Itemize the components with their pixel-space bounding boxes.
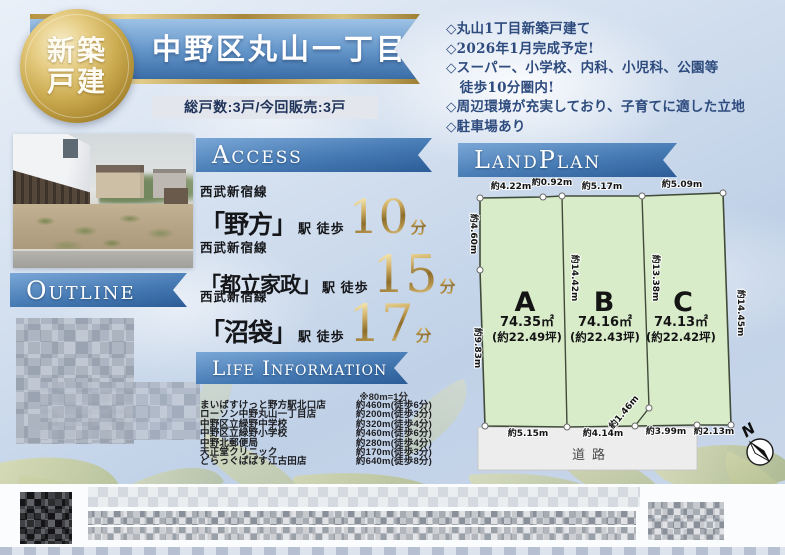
outline-details-blurred [40, 382, 200, 440]
footer-band [0, 484, 785, 555]
measurement-bottom-b: 約4.14m [583, 427, 624, 439]
photo-road-shape [13, 249, 193, 268]
footer-text-blurred [88, 511, 636, 525]
lot-b-label: B [594, 287, 615, 318]
outline-heading-ribbon: Outline [10, 273, 187, 307]
new-build-badge: 新築 戸建 [20, 9, 134, 123]
minutes-unit: 分 [416, 322, 432, 346]
lot-c-tsubo: (約22.42坪) [646, 330, 716, 344]
life-information-heading-label: Life Information [196, 356, 387, 380]
measurement-bottom-a: 約5.15m [508, 427, 549, 439]
flyer-canvas: 新築 戸建 中野区丸山一丁目 総戸数:3戸/今回販売:3戸 ◇丸山1丁目新築戸建… [0, 0, 785, 555]
lot-b-area: 74.16㎡ [578, 314, 632, 330]
highlight-line: ◇周辺環境が充実しており、子育てに適した立地 [446, 98, 784, 118]
measurement-top-c: 約5.09m [662, 178, 703, 190]
life-information-heading-ribbon: Life Information [196, 352, 408, 384]
lot-a-tsubo: (約22.49坪) [492, 330, 562, 344]
road-label: 道路 [572, 447, 612, 463]
highlight-line: 徒歩10分圏内! [446, 79, 784, 99]
footer-text-blurred [88, 527, 636, 540]
lot-c-area: 74.13㎡ [654, 314, 708, 330]
footer-text-blurred [88, 487, 640, 507]
land-plan-diagram: 道路 A 74.35㎡ (約22.49坪) B 74.16㎡ (約22.43坪)… [452, 178, 785, 493]
access-heading-ribbon: Access [196, 138, 432, 172]
measurement-inner-ab: 約14.42m [569, 255, 581, 302]
access-route: 西武新宿線 「野方」 駅 徒歩 10 分 [200, 181, 452, 241]
measurement-left-lower: 約9.83m [472, 328, 484, 369]
highlights-list: ◇丸山1丁目新築戸建て ◇2026年1月完成予定! ◇スーパー、小学校、内科、小… [446, 20, 784, 137]
land-plan-heading-ribbon: LandPlan [458, 143, 677, 177]
footer-bottom-strip [0, 547, 785, 555]
property-photo [13, 134, 193, 268]
facility-list: まいばすけっと野方駅北口店 約460m(徒歩6分) ローソン中野丸山一丁目店 約… [200, 401, 432, 467]
photo-background-house-shape [96, 165, 145, 199]
compass-north-label: N [738, 419, 759, 441]
facility-row: どらっぐぱぱす江古田店 約640m(徒歩8分) [200, 457, 432, 466]
measurement-inner-bc: 約13.38m [650, 255, 662, 302]
footer-block-blurred [648, 502, 724, 540]
station-name: 「野方」 [200, 205, 296, 241]
measurement-right-side: 約14.45m [735, 290, 747, 337]
highlight-line: ◇駐車場あり [446, 118, 784, 138]
measurement-bottom-c: 約3.99m [646, 425, 687, 437]
badge-text-line2: 戸建 [47, 66, 107, 97]
highlight-line: ◇丸山1丁目新築戸建て [446, 20, 784, 40]
lot-a-area: 74.35㎡ [500, 314, 554, 330]
walk-label: 駅 徒歩 [298, 218, 345, 237]
access-route: 西武新宿線 「沼袋」 駅 徒歩 17 分 [200, 286, 452, 349]
measurement-top-a: 約4.22m [491, 180, 532, 192]
measurement-top-ab: 約0.92m [532, 178, 573, 188]
access-heading-label: Access [196, 141, 303, 169]
badge-text-line1: 新築 [47, 35, 107, 66]
outline-heading-label: Outline [10, 276, 136, 305]
photo-vacant-lot-ground [13, 204, 193, 254]
compass: N [738, 419, 773, 465]
walk-minutes: 10 [349, 198, 409, 238]
land-plan-heading-label: LandPlan [458, 146, 601, 174]
facility-distance: 約640m(徒歩8分) [356, 457, 432, 466]
minutes-unit: 分 [410, 214, 426, 238]
company-logo-blurred [20, 492, 72, 544]
lot-b-tsubo: (約22.43坪) [570, 330, 640, 344]
lot-c-label: C [673, 287, 693, 318]
facility-name: どらっぐぱぱす江古田店 [200, 457, 307, 466]
station-name: 「沼袋」 [200, 313, 296, 349]
highlight-line: ◇2026年1月完成予定! [446, 40, 784, 60]
measurement-left-upper: 約4.60m [468, 214, 480, 255]
walk-minutes: 17 [349, 303, 414, 346]
walk-label: 駅 徒歩 [298, 326, 345, 345]
measurement-top-b: 約5.17m [582, 180, 623, 192]
highlight-line: ◇スーパー、小学校、内科、小児科、公園等 [446, 59, 784, 79]
units-info: 総戸数:3戸/今回販売:3戸 [152, 96, 378, 119]
lot-a-label: A [515, 287, 536, 318]
photo-window-shape [63, 139, 77, 158]
